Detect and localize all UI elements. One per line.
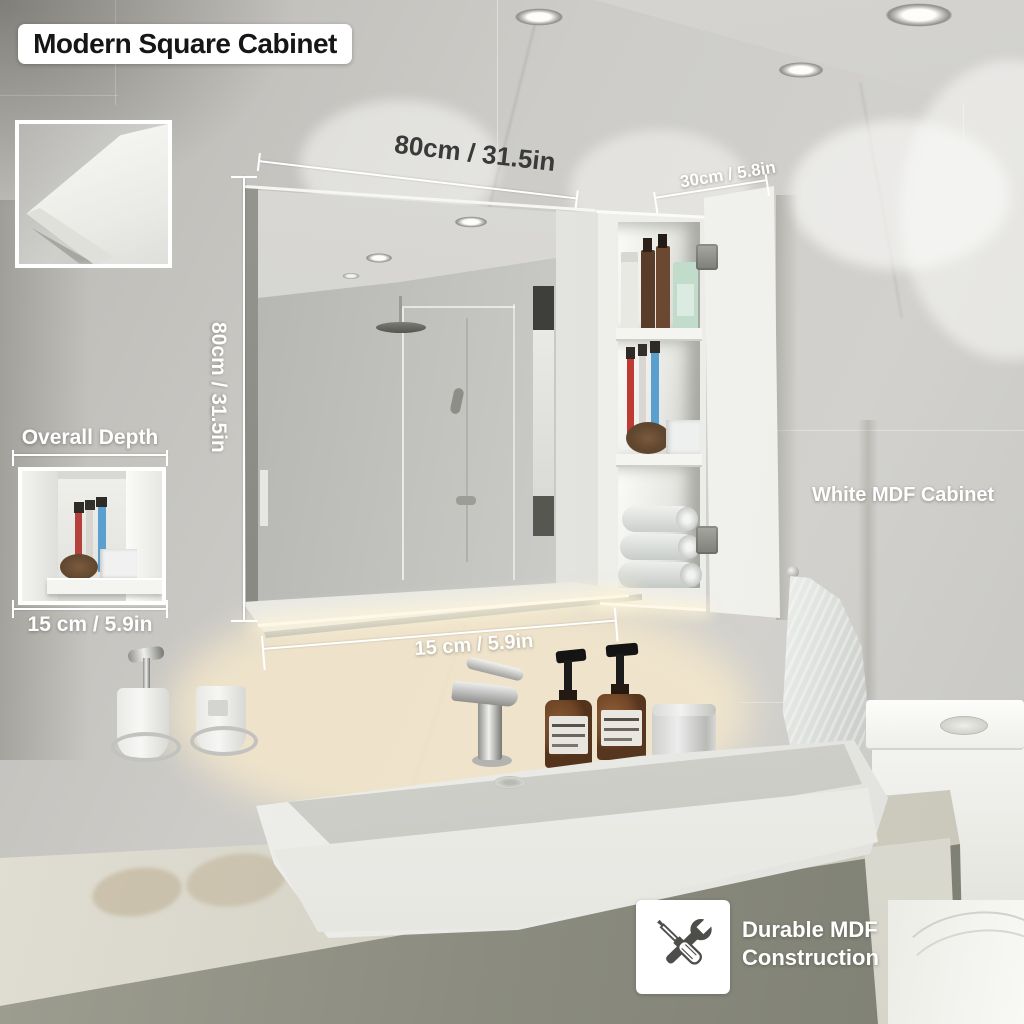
mini-toothbrush-head (74, 502, 84, 512)
bottle-green-label (677, 284, 694, 316)
label-line (552, 744, 578, 747)
tumbler-wall-mount (208, 700, 228, 716)
reflected-downlight (340, 272, 362, 280)
mini-coaster (60, 554, 98, 580)
sink-drain (494, 776, 526, 789)
construction-label-line2: Construction (742, 944, 962, 972)
board-top-face (19, 124, 168, 264)
label-line (604, 718, 639, 721)
white-box (666, 420, 700, 454)
inset-depth-photo (18, 467, 166, 605)
construction-label: Durable MDF Construction (742, 916, 962, 972)
overall-depth-value: 15 cm / 5.9in (12, 613, 168, 637)
label-line (552, 734, 585, 737)
mini-box (100, 549, 136, 578)
reflected-window-bottom (533, 496, 554, 536)
dimension-label-height: 80cm / 31.5in (206, 322, 230, 482)
bottle-brown (656, 246, 670, 330)
shelf-board (616, 328, 702, 341)
label-line (604, 728, 639, 731)
construction-label-line1: Durable MDF (742, 916, 962, 944)
reflected-towel-bar (260, 470, 268, 526)
rain-showerhead (376, 322, 426, 333)
construction-badge (636, 900, 730, 994)
door-hinge (696, 244, 718, 270)
bottle-white (621, 252, 638, 330)
reflected-downlight (450, 215, 492, 229)
towel-roll-end (680, 563, 702, 587)
door-shadow (776, 195, 798, 620)
reflected-downlight (362, 252, 396, 264)
label-line (604, 738, 632, 741)
shelf-board (616, 454, 702, 467)
inset-mdf-board (15, 120, 172, 268)
mini-toothbrush-head (85, 500, 95, 510)
reflected-window-frame (533, 330, 554, 496)
wooden-coaster (626, 422, 670, 454)
shower-glass-edge (402, 308, 404, 580)
towel-roll-end (676, 507, 698, 531)
page-title: Modern Square Cabinet (33, 28, 337, 60)
mini-toothbrush-head (96, 497, 107, 507)
shower-glass-top (402, 306, 515, 308)
dimension-line-height (243, 176, 245, 622)
niche-shelf-board (47, 578, 162, 594)
bottle-brown-cap (658, 234, 667, 248)
toothbrush-head (638, 344, 647, 356)
door-hinge (696, 526, 718, 554)
dimension-line-depth-top (12, 454, 168, 456)
toothbrush-head (650, 341, 660, 353)
flush-button (940, 716, 988, 735)
bottle-brown-cap (643, 238, 652, 252)
soap-dispenser-stem (143, 658, 150, 692)
reflected-window-top (533, 286, 554, 330)
product-infographic: Overall Depth 15 cm / 5.9in 80cm / 31.5i… (0, 0, 1024, 1024)
label-line (552, 724, 585, 727)
shower-glass-edge (513, 304, 515, 580)
towel-hook (787, 566, 799, 578)
tumbler-holder-ring (190, 726, 258, 756)
shower-valve (456, 496, 476, 505)
overall-depth-label: Overall Depth (12, 426, 168, 450)
title-badge: Modern Square Cabinet (18, 24, 352, 64)
material-label: White MDF Cabinet (812, 484, 1012, 507)
faucet-body (478, 698, 502, 760)
tools-icon (645, 909, 721, 985)
shower-pipe (399, 296, 402, 324)
dimension-line-depth-bottom (12, 608, 168, 610)
bottle-brown (641, 250, 655, 330)
shower-column (466, 318, 468, 562)
glass-jar-lid (652, 704, 716, 716)
toothbrush-head (626, 347, 635, 359)
dispenser-holder-ring (111, 732, 181, 762)
